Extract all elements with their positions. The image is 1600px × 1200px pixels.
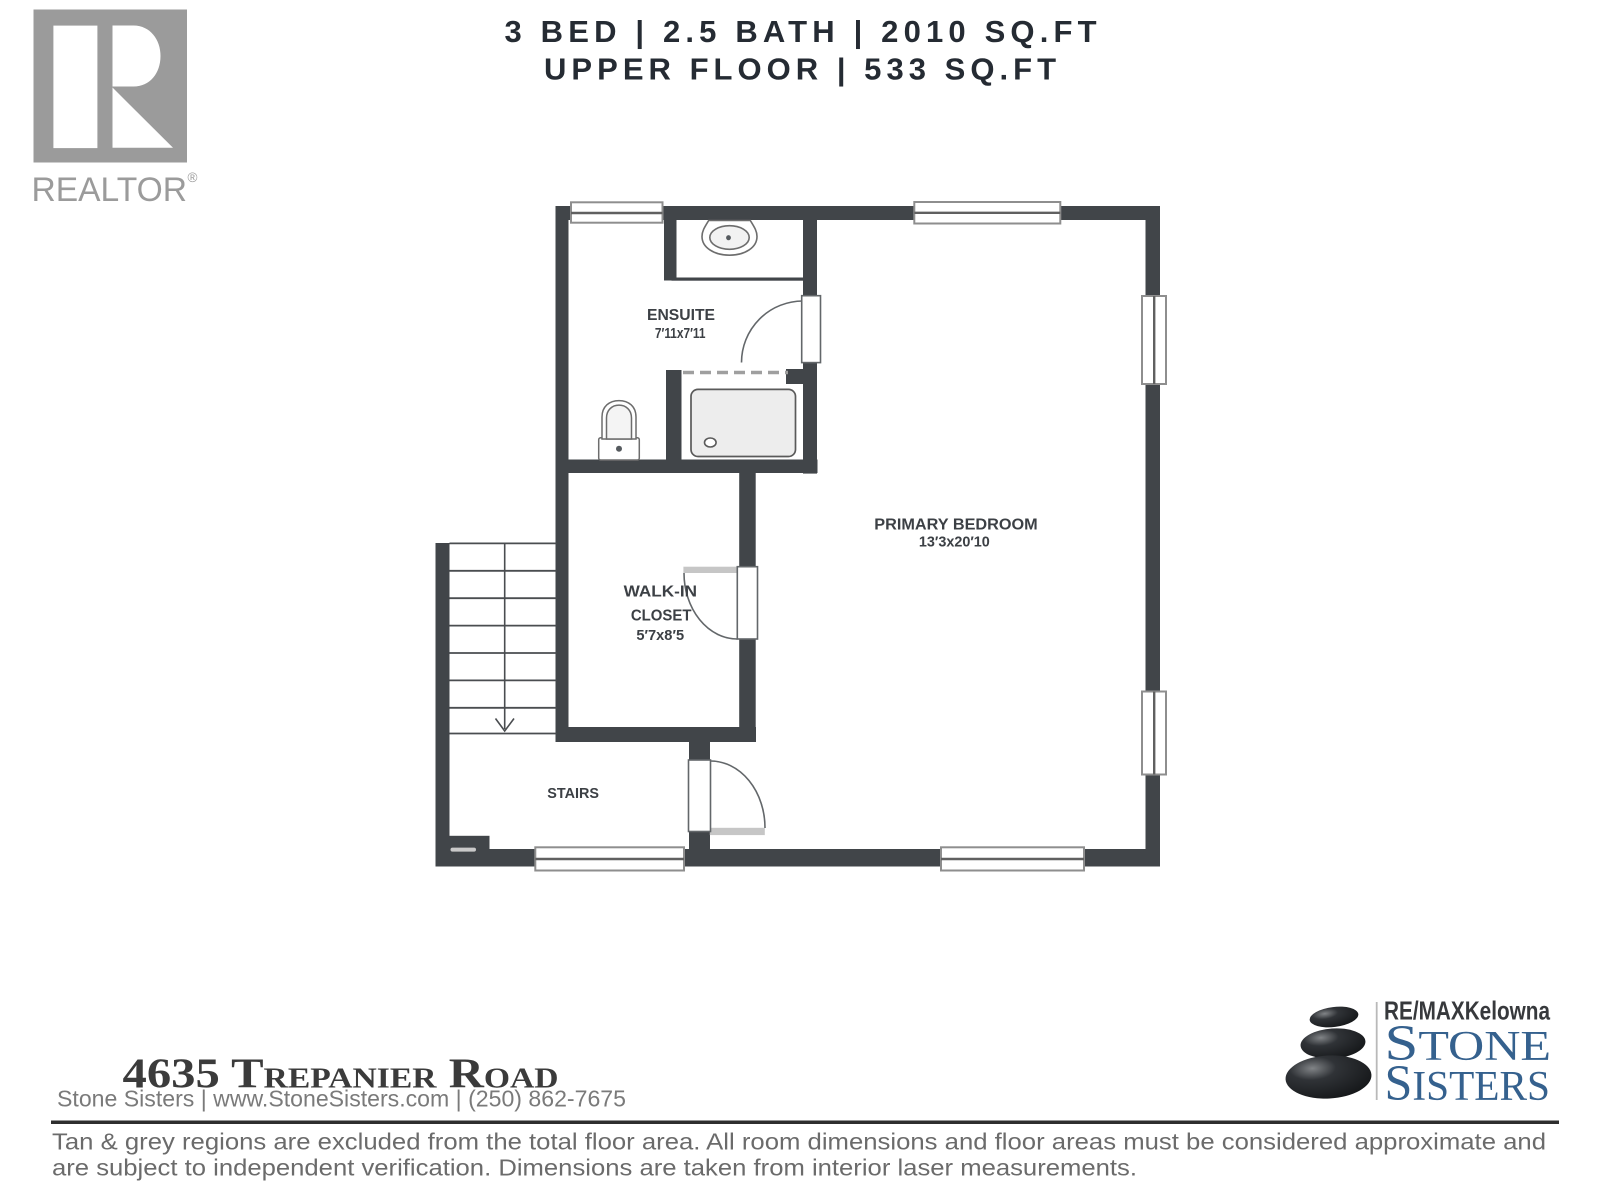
svg-text:SISTERS: SISTERS [1385,1056,1551,1112]
svg-text:WALK-IN: WALK-IN [624,584,697,601]
svg-text:Stone Sisters | www.StoneSiste: Stone Sisters | www.StoneSisters.com | (… [57,1086,626,1112]
svg-text:5′7x8′5: 5′7x8′5 [636,628,684,644]
svg-text:UPPER FLOOR | 533 SQ.FT: UPPER FLOOR | 533 SQ.FT [544,52,1056,87]
svg-text:Tan & grey regions are exclude: Tan & grey regions are excluded from the… [52,1128,1546,1154]
svg-text:3 BED | 2.5 BATH | 2010 SQ.FT: 3 BED | 2.5 BATH | 2010 SQ.FT [505,14,1097,49]
svg-text:ENSUITE: ENSUITE [647,307,715,324]
svg-text:CLOSET: CLOSET [631,608,692,625]
svg-text:are subject to independent ver: are subject to independent verification.… [52,1155,1137,1181]
svg-text:13′3x20′10: 13′3x20′10 [919,535,990,551]
svg-text:STAIRS: STAIRS [547,786,599,802]
svg-text:PRIMARY BEDROOM: PRIMARY BEDROOM [874,517,1037,534]
svg-text:REALTOR: REALTOR [32,171,188,209]
svg-text:7′11x7′11: 7′11x7′11 [655,326,706,342]
svg-text:®: ® [188,170,198,185]
